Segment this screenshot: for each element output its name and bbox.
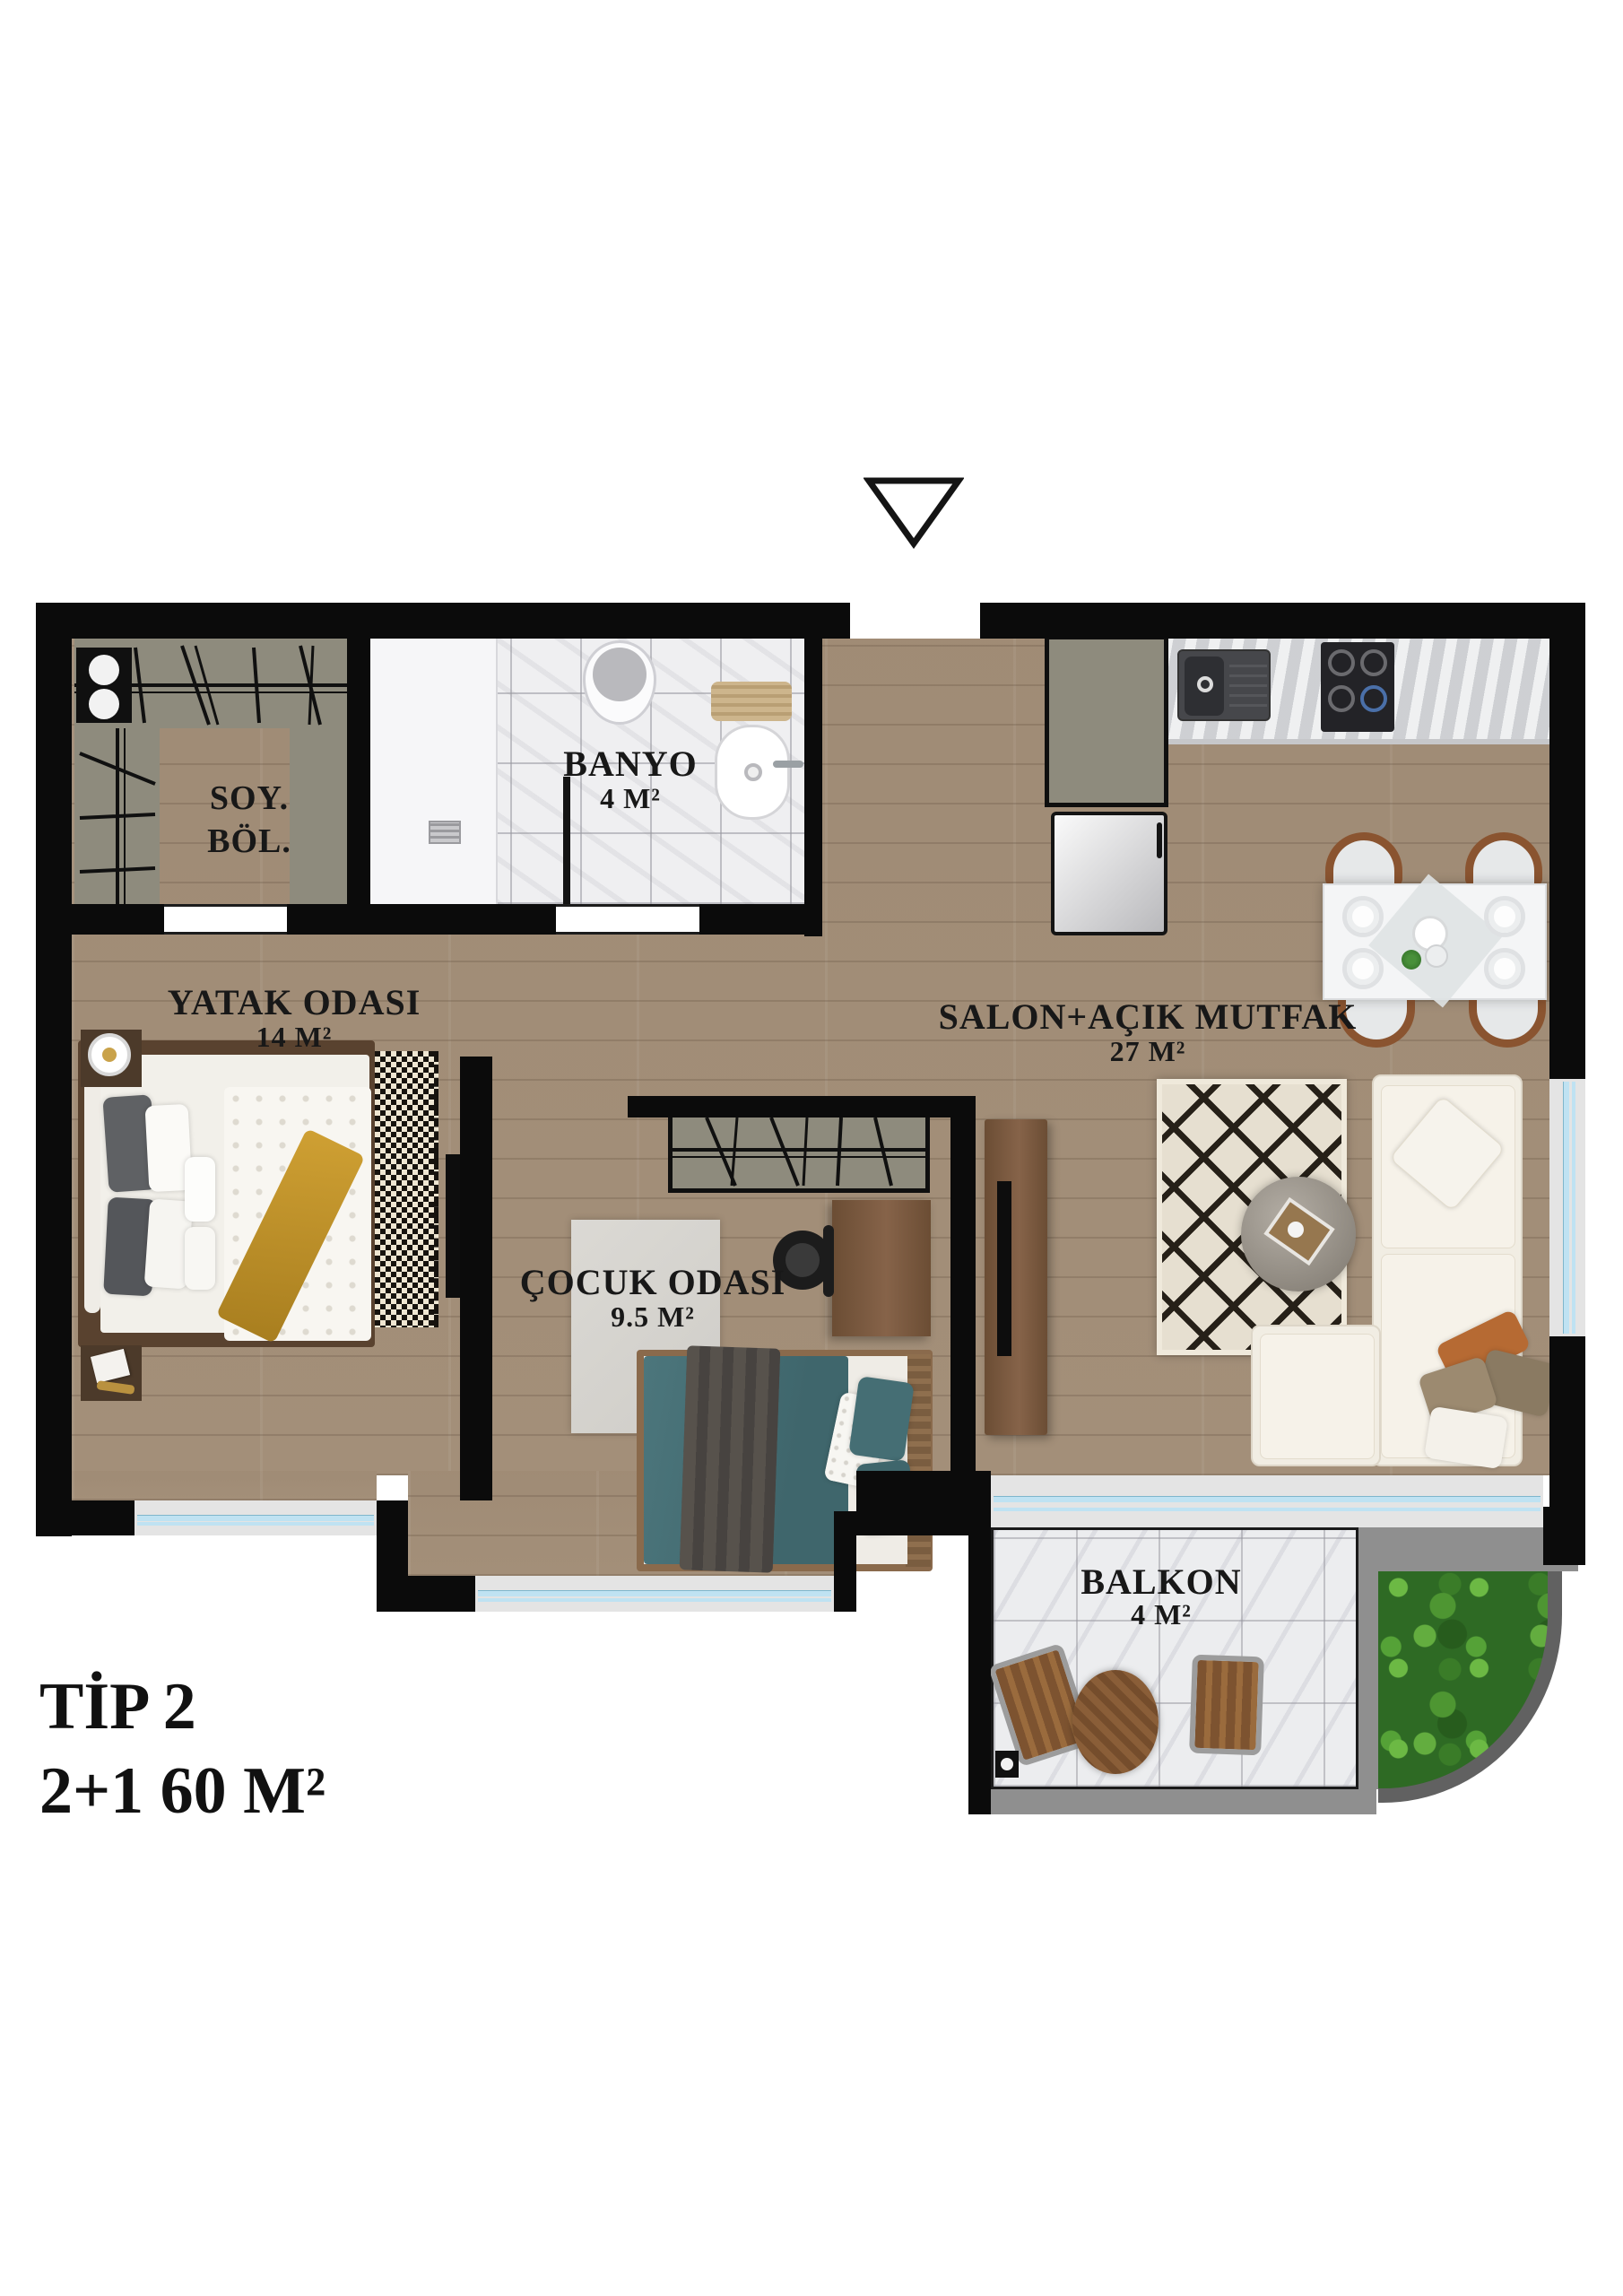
bed-headboard bbox=[84, 1074, 100, 1313]
tall-cabinet bbox=[1045, 635, 1168, 807]
wardrobe-left-band bbox=[74, 728, 160, 904]
dressing-sliding-door bbox=[164, 904, 287, 935]
wardrobe-hangers-icon bbox=[673, 1114, 925, 1188]
wall-bedroom-kidsroom bbox=[460, 1057, 492, 1500]
dining-table bbox=[1323, 883, 1547, 1000]
wall-kidsroom-bottom-right bbox=[834, 1511, 856, 1612]
wall-right-upper bbox=[1549, 603, 1585, 1079]
wall-top-left bbox=[36, 603, 850, 639]
label-bedroom-area: 14 M² bbox=[256, 1021, 333, 1054]
plate-icon bbox=[1484, 948, 1525, 989]
plan-spec-title: 2+1 60 M² bbox=[39, 1758, 325, 1824]
bedroom-tv-screen bbox=[446, 1154, 460, 1298]
label-living-name: SALON+AÇIK MUTFAK bbox=[939, 996, 1358, 1038]
label-balcony-area: 4 M² bbox=[1131, 1598, 1192, 1631]
sofa-cushion bbox=[1260, 1334, 1375, 1459]
tv-screen bbox=[997, 1181, 1011, 1356]
entrance-triangle-icon bbox=[864, 475, 964, 551]
cup-icon bbox=[1288, 1222, 1304, 1238]
kids-pillow-teal bbox=[848, 1376, 915, 1462]
wall-top-right bbox=[980, 603, 1585, 639]
kids-bed-throw-dark bbox=[680, 1345, 781, 1572]
shower-drain-icon bbox=[429, 821, 461, 844]
living-side-window bbox=[1549, 1079, 1585, 1336]
bed-pillow-small bbox=[185, 1157, 215, 1222]
wall-dressing-bottom-right bbox=[287, 904, 370, 935]
vertical-garden bbox=[1378, 1571, 1562, 1803]
sink-drain-icon bbox=[744, 763, 762, 781]
wall-bathroom-right bbox=[804, 639, 822, 936]
floor-shower-area bbox=[370, 639, 498, 904]
plate-icon bbox=[1342, 948, 1384, 989]
washing-machine bbox=[76, 648, 132, 723]
wall-kidsroom-living bbox=[950, 1096, 976, 1535]
drainboard-lines bbox=[1229, 658, 1267, 714]
burner-icon bbox=[1328, 649, 1355, 676]
wall-left bbox=[36, 603, 72, 1536]
stove bbox=[1321, 642, 1394, 732]
label-dressing-line1: SOY. bbox=[210, 778, 289, 818]
washer-drum-icon bbox=[89, 689, 119, 719]
label-bathroom-name: BANYO bbox=[563, 743, 697, 785]
wall-right-corner bbox=[1543, 1507, 1585, 1565]
label-kidsroom-area: 9.5 M² bbox=[611, 1300, 695, 1334]
bathroom-sliding-door bbox=[556, 904, 699, 935]
drain-hole-icon bbox=[1001, 1758, 1013, 1770]
bath-shelf bbox=[711, 682, 792, 721]
balcony-table bbox=[1072, 1670, 1159, 1774]
label-kidsroom-name: ÇOCUK ODASI bbox=[520, 1261, 786, 1303]
burner-icon bbox=[1360, 685, 1387, 712]
floor-plan-canvas: SOY. BÖL. BANYO 4 M² YATAK ODASI 14 M² S… bbox=[0, 0, 1623, 2296]
desk-chair-seat bbox=[785, 1243, 820, 1277]
wall-step-vertical bbox=[377, 1500, 408, 1612]
burner-icon bbox=[1328, 685, 1355, 712]
fridge bbox=[1051, 812, 1167, 935]
bed-pillow-small bbox=[185, 1227, 215, 1290]
fridge-handle bbox=[1157, 822, 1162, 858]
tv-console bbox=[985, 1119, 1047, 1435]
sink-drain-icon bbox=[1197, 676, 1213, 692]
balcony-railing-bottom bbox=[968, 1789, 1376, 1814]
balcony-drain bbox=[995, 1751, 1019, 1778]
plan-type-title: TİP 2 bbox=[39, 1674, 196, 1740]
plate-icon bbox=[1484, 896, 1525, 937]
wall-kidsroom-bottom-left bbox=[408, 1576, 475, 1612]
wardrobe-right-band bbox=[290, 728, 347, 904]
toilet-lid bbox=[593, 648, 647, 701]
plate-icon bbox=[1342, 896, 1384, 937]
wall-dressing-bottom-left bbox=[36, 904, 164, 935]
washer-drum-icon bbox=[89, 655, 119, 685]
label-bedroom-name: YATAK ODASI bbox=[168, 981, 421, 1023]
bathroom-sink bbox=[715, 725, 790, 820]
floor-bedroom-extension bbox=[72, 1471, 377, 1500]
kids-wardrobe bbox=[668, 1109, 930, 1193]
wall-dressing-bathroom bbox=[347, 639, 370, 906]
kitchen-sink bbox=[1177, 649, 1271, 721]
bedroom-window bbox=[135, 1500, 377, 1535]
lamp-center-icon bbox=[102, 1048, 117, 1062]
faucet-icon bbox=[773, 761, 803, 768]
sofa-chaise-section bbox=[1251, 1325, 1381, 1466]
balcony-chair bbox=[1189, 1655, 1264, 1756]
wardrobe-hangers-icon bbox=[74, 728, 160, 904]
shower-glass-partition bbox=[563, 777, 570, 904]
wall-living-bottom-black bbox=[856, 1471, 991, 1535]
kids-desk bbox=[832, 1200, 931, 1336]
living-balcony-window bbox=[991, 1475, 1543, 1527]
plant-centerpiece-icon bbox=[1402, 950, 1421, 970]
wall-bathroom-bottom-right bbox=[699, 904, 822, 935]
label-bathroom-area: 4 M² bbox=[600, 782, 661, 815]
table-lamp-icon bbox=[88, 1033, 131, 1076]
wall-bathroom-bottom-left bbox=[370, 904, 556, 935]
label-dressing-line2: BÖL. bbox=[207, 822, 291, 861]
desk-chair-back bbox=[823, 1225, 834, 1297]
bowl-icon bbox=[1425, 944, 1448, 968]
wall-kidsroom-top bbox=[628, 1096, 950, 1118]
wall-bedroom-bottom-left bbox=[36, 1500, 135, 1535]
ottoman-coffee-table bbox=[1241, 1177, 1356, 1291]
wall-balcony-left bbox=[968, 1527, 991, 1814]
label-living-area: 27 M² bbox=[1110, 1035, 1186, 1068]
burner-icon bbox=[1360, 649, 1387, 676]
kidsroom-window bbox=[475, 1576, 834, 1612]
label-balcony-name: BALKON bbox=[1081, 1561, 1241, 1603]
